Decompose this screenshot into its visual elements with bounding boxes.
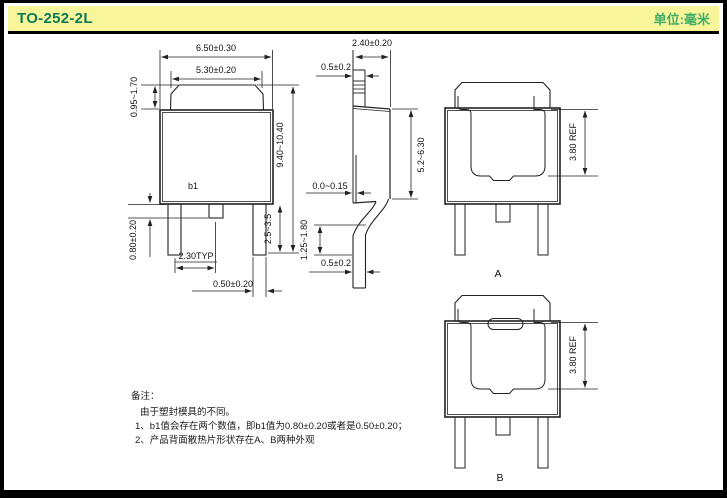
notes-item-1: 1、b1值会存在两个数值，即b1值为0.80±0.20或者是0.50±0.20； xyxy=(135,418,407,432)
front-left-lead xyxy=(168,204,181,255)
back-b-body xyxy=(445,321,560,417)
side-view: 2.40±0.20 0.5±0.2 5.2~6.30 0.0~0.15 1.25… xyxy=(299,38,426,288)
dim-front-lead-length: 2.5~3.5 xyxy=(263,214,273,244)
back-a-center-lead xyxy=(496,204,510,222)
back-b-right-lead xyxy=(538,417,548,468)
back-b-label: B xyxy=(496,472,503,484)
dim-front-width-tab: 5.30±0.20 xyxy=(196,65,236,75)
side-package-outline xyxy=(353,50,390,288)
dim-side-standoff: 0.0~0.15 xyxy=(312,181,347,191)
notes-heading: 备注： xyxy=(131,388,160,402)
back-a-right-lead xyxy=(538,204,548,255)
notes-intro: 由于塑封模具的不同。 xyxy=(140,404,235,418)
back-view-b: 3.80 REF B xyxy=(445,296,598,485)
dim-front-lead-pitch: 2.30TYP xyxy=(178,251,213,261)
dim-side-tab-thickness: 0.5±0.2 xyxy=(321,62,351,72)
dim-front-stub-length: 0.80±0.20 xyxy=(128,220,138,260)
dim-front-total-height: 9.40~10.40 xyxy=(275,122,285,167)
notes-item-2: 2、产品背面散热片形状存在A、B两种外观 xyxy=(135,432,314,446)
back-a-tab xyxy=(455,83,550,109)
back-a-left-lead xyxy=(455,204,465,255)
front-view: 6.50±0.30 5.30±0.20 0.95~1.70 9.40~10.40… xyxy=(128,43,299,297)
dim-side-lead-bend: 1.25~1.80 xyxy=(299,220,309,260)
front-package-outline xyxy=(160,85,273,255)
dim-front-tab-height: 0.95~1.70 xyxy=(129,77,139,117)
back-b-left-lead xyxy=(455,417,465,468)
back-a-body xyxy=(445,108,560,204)
dim-side-thickness: 2.40±0.20 xyxy=(352,38,392,48)
back-b-pad-slot xyxy=(488,319,523,330)
dim-side-lead-thickness: 0.5±0.2 xyxy=(321,258,351,268)
back-view-a: 3.80 REF A xyxy=(445,83,598,281)
dim-back-a-pad-height: 3.80 REF xyxy=(568,122,578,161)
front-center-lead xyxy=(209,204,223,218)
back-b-tab xyxy=(455,296,550,322)
dim-back-b-pad-height: 3.80 REF xyxy=(568,335,578,374)
back-a-label: A xyxy=(494,268,501,280)
dim-front-lead-width: 0.50±0.20 xyxy=(213,279,253,289)
dim-front-b1-label: b1 xyxy=(188,181,198,191)
side-lead-inner-curve xyxy=(353,202,376,289)
dim-side-body-height: 5.2~6.30 xyxy=(416,137,426,172)
side-dimension-lines xyxy=(306,50,418,272)
dim-front-width-outer: 6.50±0.30 xyxy=(196,43,236,53)
back-b-center-lead xyxy=(496,417,510,435)
